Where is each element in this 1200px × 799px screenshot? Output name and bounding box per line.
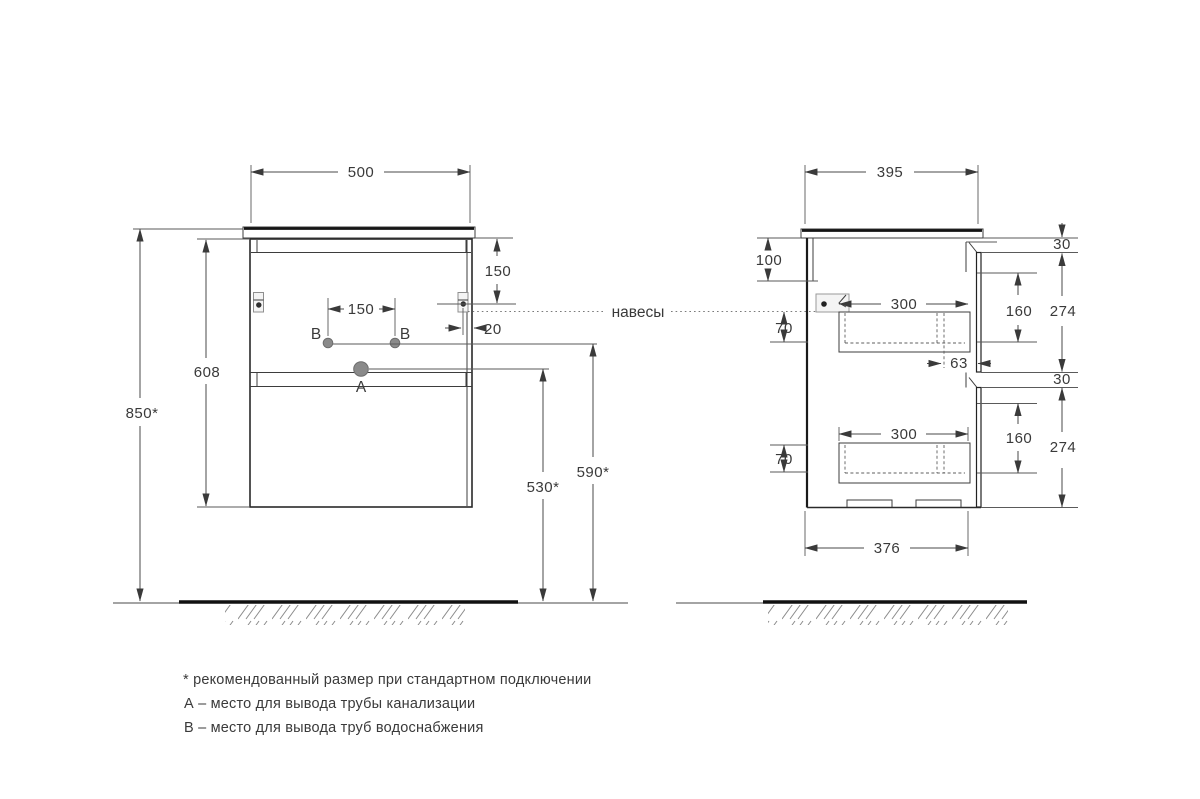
- dim-top-reveal: 30: [1053, 223, 1071, 253]
- svg-text:590*: 590*: [577, 464, 610, 481]
- svg-text:530*: 530*: [527, 479, 560, 496]
- ground-right: [676, 602, 1027, 625]
- ground-hatching: [768, 605, 1008, 625]
- dim-back-rail: 100: [756, 238, 818, 281]
- dim-front-width: 500: [251, 164, 470, 223]
- dim-water-height: 590*: [577, 344, 610, 601]
- svg-text:160: 160: [1006, 303, 1033, 320]
- dim-bracket-side-offset: 20: [445, 308, 502, 338]
- bracket-screw-dot: [821, 301, 827, 307]
- svg-text:376: 376: [874, 540, 901, 557]
- drawer-front-bottom: [977, 388, 982, 508]
- svg-text:150: 150: [485, 263, 512, 280]
- foot-notch-right: [916, 500, 961, 507]
- dim-drain-height: 530*: [527, 369, 560, 601]
- svg-text:850*: 850*: [126, 405, 159, 422]
- water-hole-left: [323, 338, 333, 348]
- svg-text:160: 160: [1006, 430, 1033, 447]
- water-hole-left-label: B: [311, 326, 321, 343]
- ground-left: [113, 602, 628, 625]
- dim-drawer-depth-top: 300: [839, 296, 968, 313]
- hangers-connector: навесы: [468, 304, 816, 321]
- note-recommended-size: * рекомендованный размер при стандартном…: [183, 672, 591, 688]
- svg-text:500: 500: [348, 164, 375, 181]
- svg-text:100: 100: [756, 252, 783, 269]
- note-drain-outlet: А – место для вывода трубы канализации: [184, 696, 475, 712]
- svg-text:70: 70: [775, 320, 793, 337]
- notes: * рекомендованный размер при стандартном…: [183, 672, 591, 736]
- svg-text:30: 30: [1053, 236, 1071, 253]
- dim-drawer-offset-bottom: 70: [770, 445, 808, 472]
- dim-drawer-inner-bottom: 160: [1006, 404, 1033, 474]
- wall-bracket-left: [254, 293, 264, 313]
- svg-text:20: 20: [484, 321, 502, 338]
- dim-drawer-inner-top: 160: [1006, 273, 1033, 342]
- dim-front-panel-top: 274: [1050, 254, 1077, 372]
- note-water-outlet: В – место для вывода труб водоснабжения: [184, 720, 484, 736]
- svg-text:300: 300: [891, 426, 918, 443]
- svg-text:30: 30: [1053, 371, 1071, 388]
- svg-text:300: 300: [891, 296, 918, 313]
- water-hole-right: [390, 338, 400, 348]
- side-view: 395 100 70 300 63: [756, 164, 1078, 557]
- svg-text:274: 274: [1050, 303, 1077, 320]
- dim-drawer-offset-top: 70: [770, 312, 808, 342]
- svg-text:274: 274: [1050, 439, 1077, 456]
- foot-notch-left: [847, 500, 892, 507]
- svg-text:70: 70: [775, 451, 793, 468]
- drawer-front-top: [977, 253, 982, 373]
- side-front-panels: [966, 242, 997, 507]
- svg-text:150: 150: [348, 301, 375, 318]
- water-hole-right-label: B: [400, 326, 410, 343]
- technical-drawing-page: B B A 500 850* 608: [0, 0, 1200, 799]
- drain-hole: [354, 362, 369, 377]
- ground-hatching: [225, 605, 465, 625]
- dim-side-depth: 395: [805, 164, 978, 224]
- drain-hole-label: A: [356, 379, 367, 396]
- svg-text:395: 395: [877, 164, 904, 181]
- svg-text:608: 608: [194, 364, 221, 381]
- front-view: B B A 500 850* 608: [126, 164, 610, 601]
- drawer-box-bottom: [839, 443, 970, 483]
- dim-middle-reveal: 30: [1053, 371, 1071, 388]
- dim-holes-spacing: 150: [328, 298, 395, 336]
- dim-front-panel-bottom: 274: [1050, 388, 1077, 507]
- hangers-label: навесы: [612, 304, 665, 321]
- svg-text:63: 63: [950, 355, 968, 372]
- dim-bottom-depth: 376: [805, 511, 968, 557]
- dim-body-height: 608: [194, 239, 250, 507]
- dim-overall-height: 850*: [126, 229, 243, 601]
- front-top-groove: [251, 240, 471, 253]
- dim-drawer-depth-bottom: 300: [839, 426, 968, 443]
- bracket-screw-dot: [256, 302, 261, 307]
- vanity-dimension-drawing: B B A 500 850* 608: [0, 0, 1200, 799]
- side-wall-bracket: [816, 294, 849, 312]
- dim-bracket-from-top: 150: [437, 238, 516, 304]
